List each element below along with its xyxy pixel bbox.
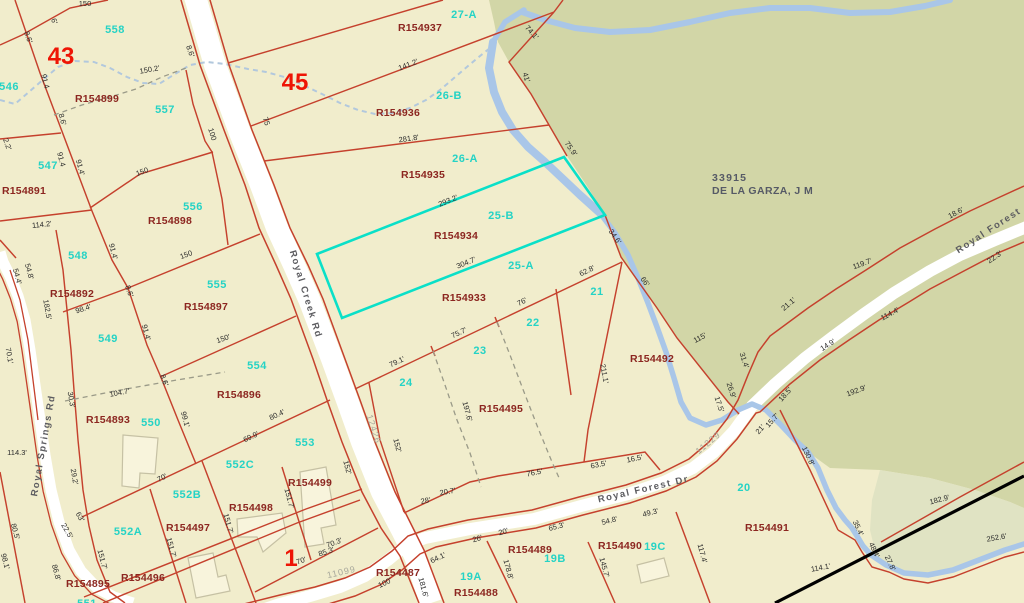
svg-text:25-B: 25-B bbox=[488, 210, 514, 222]
svg-text:33915: 33915 bbox=[712, 172, 747, 184]
svg-text:19C: 19C bbox=[644, 541, 666, 553]
svg-text:R154497: R154497 bbox=[166, 522, 210, 534]
svg-text:552A: 552A bbox=[114, 526, 142, 538]
svg-text:R154934: R154934 bbox=[434, 230, 478, 242]
svg-text:555: 555 bbox=[207, 279, 227, 291]
svg-text:114.3': 114.3' bbox=[7, 448, 27, 457]
svg-text:556: 556 bbox=[183, 201, 203, 213]
svg-text:553: 553 bbox=[295, 437, 315, 449]
svg-text:R154498: R154498 bbox=[229, 502, 273, 514]
svg-text:43: 43 bbox=[48, 43, 75, 70]
svg-text:45: 45 bbox=[282, 69, 309, 96]
svg-text:R154487: R154487 bbox=[376, 567, 420, 579]
svg-text:20: 20 bbox=[737, 482, 750, 494]
svg-text:550: 550 bbox=[141, 417, 161, 429]
svg-text:548: 548 bbox=[68, 250, 88, 262]
svg-text:551: 551 bbox=[77, 598, 97, 603]
svg-text:R154933: R154933 bbox=[442, 292, 486, 304]
svg-text:558: 558 bbox=[105, 24, 125, 36]
svg-text:R154891: R154891 bbox=[2, 185, 46, 197]
svg-text:DE LA GARZA, J M: DE LA GARZA, J M bbox=[712, 185, 813, 197]
svg-text:R154496: R154496 bbox=[121, 572, 165, 584]
svg-text:22: 22 bbox=[526, 317, 539, 329]
svg-text:R154892: R154892 bbox=[50, 288, 94, 300]
svg-text:549: 549 bbox=[98, 333, 118, 345]
svg-text:R154489: R154489 bbox=[508, 544, 552, 556]
svg-text:19A: 19A bbox=[460, 571, 482, 583]
svg-text:R154936: R154936 bbox=[376, 107, 420, 119]
svg-text:27-A: 27-A bbox=[451, 9, 477, 21]
svg-text:554: 554 bbox=[247, 360, 267, 372]
svg-text:R154898: R154898 bbox=[148, 215, 192, 227]
svg-text:R154896: R154896 bbox=[217, 389, 261, 401]
svg-text:26-A: 26-A bbox=[452, 153, 478, 165]
svg-text:R154488: R154488 bbox=[454, 587, 498, 599]
svg-text:R154492: R154492 bbox=[630, 353, 674, 365]
svg-text:R154491: R154491 bbox=[745, 522, 789, 534]
svg-text:R154495: R154495 bbox=[479, 403, 523, 415]
svg-text:R154893: R154893 bbox=[86, 414, 130, 426]
svg-text:R154895: R154895 bbox=[66, 578, 110, 590]
svg-text:24: 24 bbox=[399, 377, 413, 389]
svg-text:557: 557 bbox=[155, 104, 175, 116]
svg-text:547: 547 bbox=[38, 160, 58, 172]
svg-text:25-A: 25-A bbox=[508, 260, 534, 272]
svg-text:R154935: R154935 bbox=[401, 169, 445, 181]
svg-text:R154937: R154937 bbox=[398, 22, 442, 34]
svg-text:23: 23 bbox=[473, 345, 486, 357]
svg-text:552B: 552B bbox=[173, 489, 201, 501]
svg-text:552C: 552C bbox=[226, 459, 254, 471]
svg-text:546: 546 bbox=[0, 81, 19, 93]
svg-text:21: 21 bbox=[590, 286, 603, 298]
svg-text:R154899: R154899 bbox=[75, 93, 119, 105]
svg-text:R154897: R154897 bbox=[184, 301, 228, 313]
svg-text:R154499: R154499 bbox=[288, 477, 332, 489]
svg-text:150: 150 bbox=[79, 0, 92, 8]
svg-text:26-B: 26-B bbox=[436, 90, 462, 102]
svg-text:R154490: R154490 bbox=[598, 540, 642, 552]
